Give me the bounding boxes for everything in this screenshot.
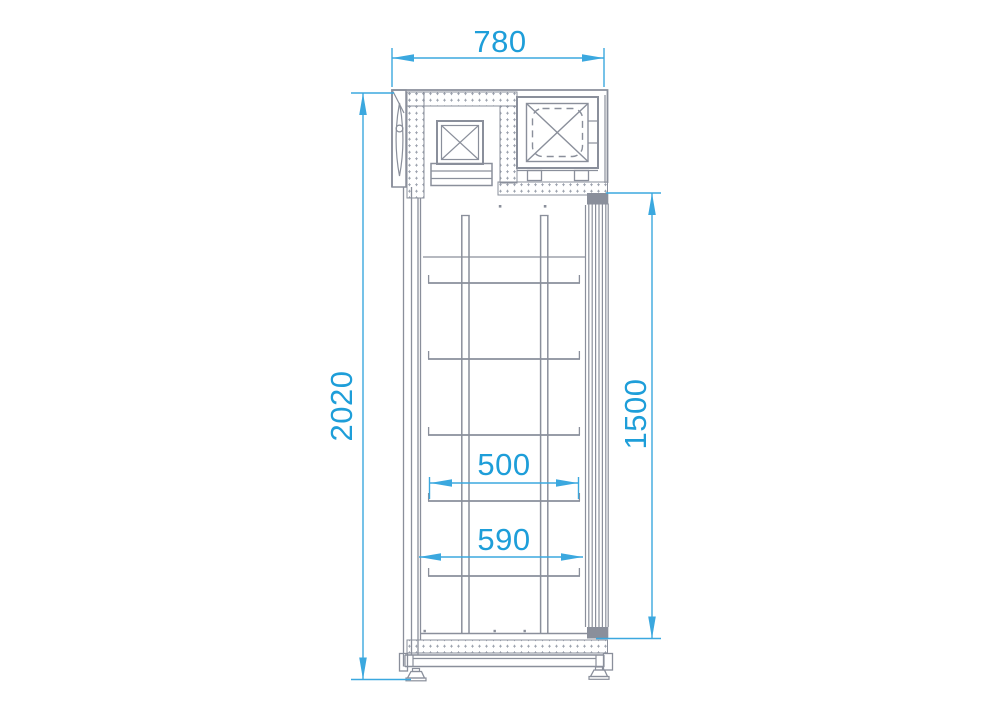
condenser-leg xyxy=(528,171,542,181)
dimension-interior-depth: 590 xyxy=(419,522,583,561)
shelf-post-rear xyxy=(461,216,470,634)
leg-plate-right xyxy=(604,654,613,671)
dim-label-door-height: 1500 xyxy=(618,379,653,450)
dim-label-interior-depth: 590 xyxy=(477,522,530,557)
dimension-overall-height: 2020 xyxy=(324,93,411,680)
arrow-up-icon xyxy=(359,93,367,115)
dim-label-overall-height: 2020 xyxy=(324,371,359,442)
arrow-down-icon xyxy=(359,658,367,680)
shelf-post-front xyxy=(540,216,549,634)
floor-dot xyxy=(524,630,526,632)
insulated-floor-band xyxy=(407,640,608,653)
shelf xyxy=(428,493,580,501)
shelf xyxy=(428,351,580,359)
dimension-overall-depth: 780 xyxy=(392,24,604,87)
arrow-right-icon xyxy=(561,553,583,561)
ceiling-dot xyxy=(544,205,547,208)
shelf xyxy=(428,275,580,283)
dim-label-overall-depth: 780 xyxy=(473,24,526,59)
shelf xyxy=(428,568,580,576)
insulation-back-strip xyxy=(407,92,424,198)
back-wall xyxy=(404,187,421,667)
latch-screw-icon xyxy=(396,125,403,132)
hinge-block-bottom xyxy=(587,627,608,639)
drawing-canvas: 780 2020 1500 500 590 xyxy=(0,0,1000,714)
evaporator-unit xyxy=(431,121,492,186)
ceiling-dot xyxy=(499,205,502,208)
cabinet-body xyxy=(404,187,609,667)
arrow-right-icon xyxy=(582,54,604,62)
insulation-step-strip xyxy=(500,106,517,183)
arrow-up-icon xyxy=(648,193,656,215)
arrow-right-icon xyxy=(556,479,578,487)
hinge-block-top xyxy=(587,193,608,205)
arrow-left-icon xyxy=(419,553,441,561)
floor-dot xyxy=(494,630,496,632)
back-top-panel xyxy=(392,90,406,187)
arrow-left-icon xyxy=(392,54,414,62)
condenser-leg xyxy=(575,171,589,181)
floor-dot xyxy=(424,630,426,632)
dim-label-shelf-depth: 500 xyxy=(477,447,530,482)
leveling-foot-right xyxy=(589,667,609,679)
shelf xyxy=(428,427,580,435)
base-frame xyxy=(400,640,613,681)
arrow-down-icon xyxy=(648,617,656,639)
arrow-left-icon xyxy=(430,479,452,487)
evaporator-tray xyxy=(431,164,492,186)
door xyxy=(586,193,609,639)
machinery-compartment xyxy=(392,90,608,198)
latch-lens-shape xyxy=(396,103,403,176)
condenser-unit xyxy=(517,97,598,181)
dimension-shelf-depth: 500 xyxy=(430,447,579,499)
cabinet-drawing xyxy=(392,90,613,681)
